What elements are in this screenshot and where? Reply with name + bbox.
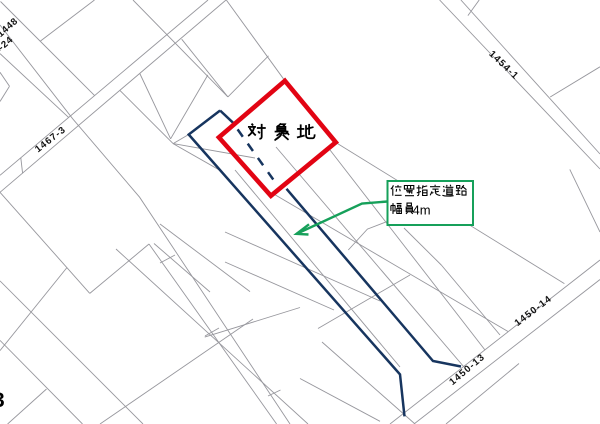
svg-text:1448: 1448 — [0, 16, 21, 40]
svg-text:1467-3: 1467-3 — [33, 124, 68, 155]
svg-text:3: 3 — [0, 389, 5, 412]
svg-text:1454-1: 1454-1 — [486, 49, 520, 83]
svg-text:4m: 4m — [413, 203, 431, 218]
svg-text:1450-14: 1450-14 — [513, 293, 555, 329]
